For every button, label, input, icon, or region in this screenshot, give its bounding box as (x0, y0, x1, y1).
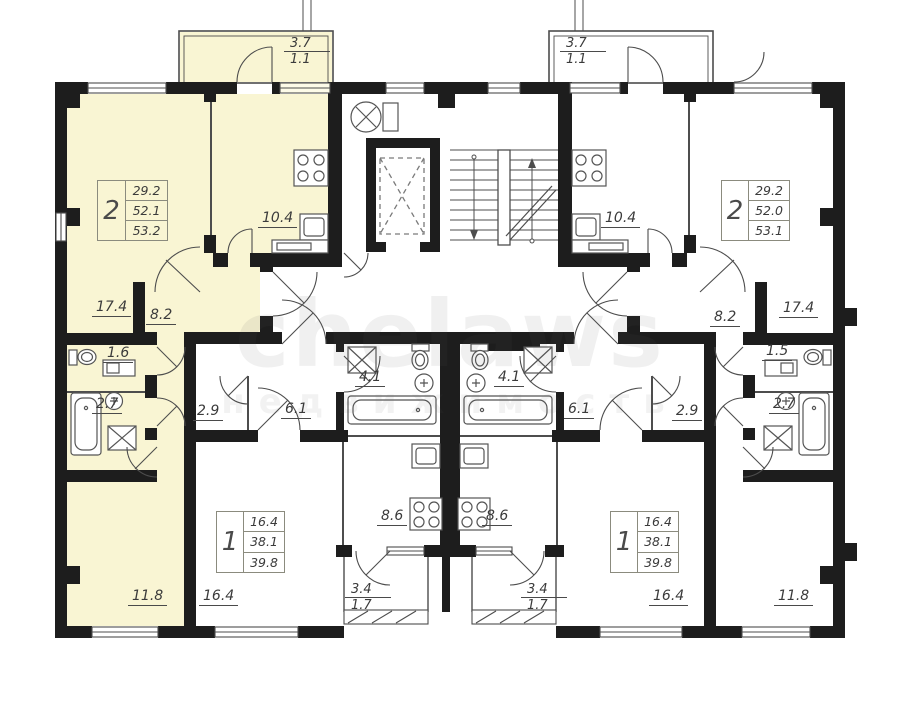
elevator-shaft (380, 158, 424, 234)
apartment-area-living: 16.4 (244, 512, 284, 532)
door-storage-left (220, 376, 248, 404)
room-label-hall-1room-right: 6.1 (564, 402, 594, 419)
stove-icon (410, 498, 442, 530)
apartment-info-one-room-left: 1 16.4 38.1 39.8 (216, 511, 285, 573)
door-entrance-bottom-left (282, 300, 326, 344)
apartment-info-two-room-left: 2 29.2 52.1 53.2 (97, 180, 168, 241)
door-kitchen-right (648, 229, 672, 253)
balcony-area-total: 3.4 (345, 582, 391, 598)
apartment-area-usable: 38.1 (638, 532, 678, 552)
washbasin-icon (467, 374, 485, 392)
highlight-apartment-fill (67, 32, 332, 626)
window (742, 627, 810, 637)
room-label-living-left: 17.4 (92, 300, 131, 317)
door-stair-lobby (344, 253, 368, 277)
balcony-area-reduced: 1.1 (284, 52, 330, 67)
bathtub-icon (348, 396, 436, 424)
stove-icon (294, 150, 328, 186)
room-label-bathroom-center-left: 4.1 (355, 370, 385, 387)
room-label-living-right: 17.4 (779, 301, 818, 318)
window (280, 83, 330, 93)
apartment-rooms-count: 1 (611, 512, 638, 572)
apartment-rooms-count: 2 (722, 181, 749, 240)
apartment-info-one-room-right: 1 16.4 38.1 39.8 (610, 511, 679, 573)
room-label-wc-left: 1.6 (103, 346, 133, 363)
window (570, 83, 620, 93)
washing-machine-icon (524, 347, 552, 373)
ventilation-unit (351, 102, 398, 132)
window (215, 627, 298, 637)
balcony-label-bottom-right: 3.4 1.7 (521, 582, 567, 613)
kitchen-sink-icon (460, 444, 488, 468)
window (488, 83, 520, 93)
apartment-area-total: 39.8 (244, 553, 284, 572)
room-label-room16-right: 16.4 (649, 589, 688, 606)
window (476, 547, 512, 555)
window-casement-right (734, 52, 764, 82)
floorplan-page: chelaws недвижимость 17.4 8.2 10.4 1.6 2… (0, 0, 900, 728)
apartment-rooms-count: 2 (98, 181, 126, 240)
washbasin-icon (415, 374, 433, 392)
door-room16-right (600, 388, 642, 430)
room-label-bath-left: 2.7 (92, 397, 122, 414)
balcony-label-bottom-left: 3.4 1.7 (345, 582, 391, 613)
door-balcony-bottom-left (356, 551, 390, 585)
window (88, 83, 166, 93)
apartment-area-living: 29.2 (749, 181, 789, 201)
room-label-storage-right: 2.9 (672, 404, 702, 421)
balcony-area-reduced: 1.7 (345, 598, 391, 613)
door-entrance-left (273, 272, 317, 316)
room-label-wc-right: 1.5 (762, 344, 792, 361)
window (600, 627, 682, 637)
floorplan-drawing (0, 0, 900, 728)
room-label-hall-1room-left: 6.1 (281, 402, 311, 419)
apartment-area-total: 53.1 (749, 221, 789, 240)
bathtub-icon (799, 393, 829, 455)
toilet-icon (412, 344, 429, 370)
door-storage-right (652, 376, 680, 404)
door-living-right (700, 247, 745, 292)
room-label-kitchen-1room-right: 8.6 (482, 509, 512, 526)
balcony-area-reduced: 1.7 (521, 598, 567, 613)
door-bath-right (715, 398, 743, 426)
room-label-storage-left: 2.9 (193, 404, 223, 421)
toilet-icon (471, 344, 488, 370)
apartment-area-living: 29.2 (126, 181, 167, 201)
balcony-area-total: 3.4 (521, 582, 567, 598)
window (56, 213, 66, 241)
balcony-area-reduced: 1.1 (560, 52, 606, 67)
room-label-kitchen-left: 10.4 (258, 211, 297, 228)
window (734, 83, 812, 93)
window (387, 547, 424, 555)
apartment-area-total: 39.8 (638, 553, 678, 572)
apartment-rooms-count: 1 (217, 512, 244, 572)
balcony-label-top-left: 3.7 1.1 (284, 36, 330, 67)
door-wc-right (715, 347, 743, 375)
room-label-bathroom-center-right: 4.1 (494, 370, 524, 387)
apartment-area-living: 16.4 (638, 512, 678, 532)
window (92, 627, 158, 637)
room-label-room11-left: 11.8 (128, 589, 167, 606)
door-entrance-right (583, 272, 627, 316)
washing-machine-icon (764, 426, 792, 450)
door-entrance-bottom-right (574, 300, 618, 344)
room-label-hall-left: 8.2 (146, 308, 176, 325)
window (386, 83, 424, 93)
balcony-area-total: 3.7 (284, 36, 330, 52)
apartment-area-usable: 38.1 (244, 532, 284, 552)
room-label-bath-right: 2.7 (769, 397, 799, 414)
staircase (450, 150, 558, 245)
room-label-kitchen-right: 10.4 (601, 211, 640, 228)
bathtub-icon (464, 396, 552, 424)
kitchen-sink-icon (412, 444, 440, 468)
room-label-hall-right: 8.2 (710, 310, 740, 327)
apartment-area-usable: 52.1 (126, 201, 167, 221)
washing-machine-icon (108, 426, 136, 450)
door-balcony-bottom-right (510, 551, 544, 585)
stove-icon (572, 150, 606, 186)
balcony-label-top-right: 3.7 1.1 (560, 36, 606, 67)
apartment-info-two-room-right: 2 29.2 52.0 53.1 (721, 180, 790, 241)
apartment-area-total: 53.2 (126, 221, 167, 240)
apartment-area-usable: 52.0 (749, 201, 789, 221)
room-label-room16-left: 16.4 (199, 589, 238, 606)
room-label-kitchen-1room-left: 8.6 (377, 509, 407, 526)
room-label-room11-right: 11.8 (774, 589, 813, 606)
balcony-area-total: 3.7 (560, 36, 606, 52)
